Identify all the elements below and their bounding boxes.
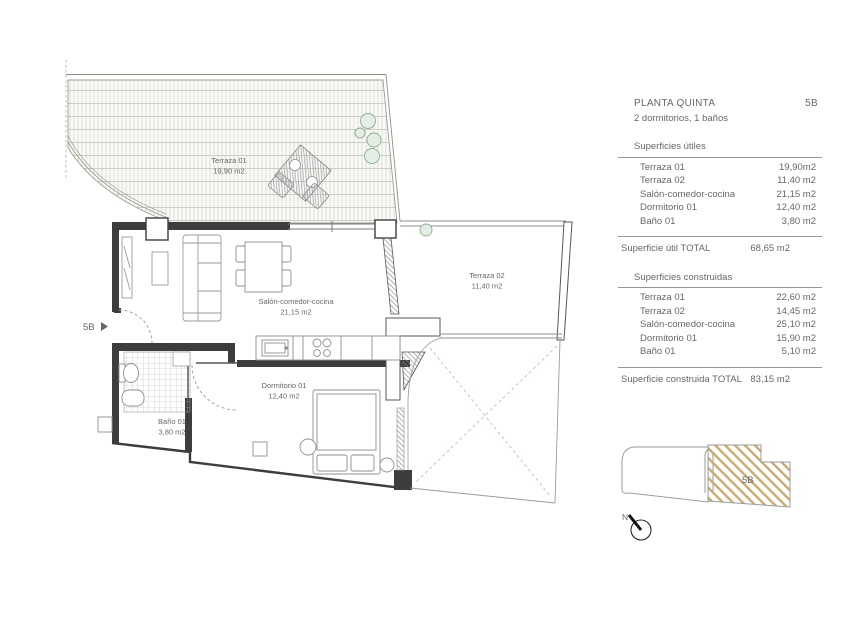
floor-plan-drawing: Terraza 01 19,90 m2 Salón-comedor-cocina…: [0, 0, 620, 620]
room-area-bano: 3,80 m2: [158, 428, 185, 437]
useful-total-label: Superficie útil TOTAL: [621, 242, 710, 256]
key-plan: 5B N: [616, 438, 850, 568]
wall-junction-box: [375, 220, 396, 238]
nightstand-right: [380, 458, 394, 472]
entrance-arrow-icon: [101, 322, 108, 331]
table-row: Baño 013,80 m2: [618, 215, 848, 229]
kitchen-counter: [256, 336, 400, 360]
room-area-terraza02: 11,40 m2: [472, 282, 503, 291]
room-area-dormitorio: 12,40 m2: [268, 392, 299, 401]
room-label-dormitorio: Dormitorio 01: [261, 381, 306, 390]
surface-table: PLANTA QUINTA 5B 2 dormitorios, 1 baños …: [618, 97, 848, 386]
built-total-value: 83,15 m2: [750, 373, 790, 387]
void-cross: [416, 346, 557, 482]
bathroom-sink: [173, 352, 190, 366]
plan-sheet: Terraza 01 19,90 m2 Salón-comedor-cocina…: [0, 0, 850, 620]
hatched-wall: [383, 238, 399, 314]
useful-surfaces-rows: Terraza 0119,90m2 Terraza 0211,40 m2 Sal…: [618, 161, 848, 229]
north-arrow: N: [622, 512, 651, 540]
pillow: [317, 455, 347, 471]
shaft-box: [98, 417, 112, 432]
coffee-table: [152, 252, 168, 285]
sheet-subtitle: 2 dormitorios, 1 baños: [618, 112, 848, 126]
table-row: Salón-comedor-cocina25,10 m2: [618, 318, 848, 332]
useful-total-value: 68,65 m2: [750, 242, 790, 256]
unit-badge: 5B: [805, 97, 818, 111]
dresser: [253, 442, 267, 456]
entrance-door: [114, 308, 152, 343]
useful-total-row: Superficie útil TOTAL 68,65 m2: [618, 236, 822, 256]
bidet: [122, 390, 144, 406]
room-label-terraza01: Terraza 01: [211, 156, 246, 165]
room-area-salon: 21,15 m2: [280, 308, 311, 317]
built-total-row: Superficie construida TOTAL 83,15 m2: [618, 367, 822, 387]
bedroom-window: [397, 408, 404, 470]
sheet-header: PLANTA QUINTA 5B: [618, 97, 848, 111]
bedroom-door: [192, 363, 237, 410]
built-surfaces-heading: Superficies construidas: [618, 271, 822, 289]
bed: [313, 390, 380, 474]
sheet-title: PLANTA QUINTA: [634, 97, 715, 111]
void-cross: [430, 348, 551, 497]
pillow: [351, 455, 374, 471]
north-label: N: [622, 512, 628, 522]
table-row: Baño 015,10 m2: [618, 345, 848, 359]
wall-block: [386, 318, 440, 336]
key-plan-drawing: 5B N: [616, 438, 850, 568]
void-area: [408, 338, 560, 503]
dining-table: [236, 242, 291, 292]
building-outline: [622, 447, 713, 502]
room-label-salon: Salón-comedor-cocina: [258, 297, 334, 306]
built-total-label: Superficie construida TOTAL: [621, 373, 742, 387]
table-row: Dormitorio 0115,90 m2: [618, 332, 848, 346]
terrace-plate: [290, 160, 301, 171]
room-label-bano: Baño 01: [158, 417, 186, 426]
table-row: Terraza 0119,90m2: [618, 161, 848, 175]
terraza-01-area: [66, 60, 400, 223]
useful-surfaces-heading: Superficies útiles: [618, 140, 822, 158]
entrance-unit-label: 5B: [83, 322, 95, 333]
terrace-plant: [420, 224, 432, 236]
table-row: Salón-comedor-cocina21,15 m2: [618, 188, 848, 202]
built-surfaces-rows: Terraza 0122,60 m2 Terraza 0214,45 m2 Sa…: [618, 291, 848, 359]
table-row: Terraza 0214,45 m2: [618, 305, 848, 319]
column-triangle: [402, 352, 425, 390]
nightstand-left: [300, 439, 316, 455]
floor-plan: Terraza 01 19,90 m2 Salón-comedor-cocina…: [0, 0, 620, 620]
sofa: [183, 235, 221, 321]
wall-junction-box: [146, 218, 168, 240]
room-area-terraza01: 19,90 m2: [213, 167, 244, 176]
room-label-terraza02: Terraza 02: [469, 271, 504, 280]
tv-unit: [122, 237, 132, 298]
table-row: Dormitorio 0112,40 m2: [618, 201, 848, 215]
key-plan-unit-label: 5B: [742, 475, 754, 486]
table-row: Terraza 0122,60 m2: [618, 291, 848, 305]
table-row: Terraza 0211,40 m2: [618, 174, 848, 188]
toilet: [124, 364, 139, 383]
entrance-marker: 5B: [83, 322, 108, 333]
